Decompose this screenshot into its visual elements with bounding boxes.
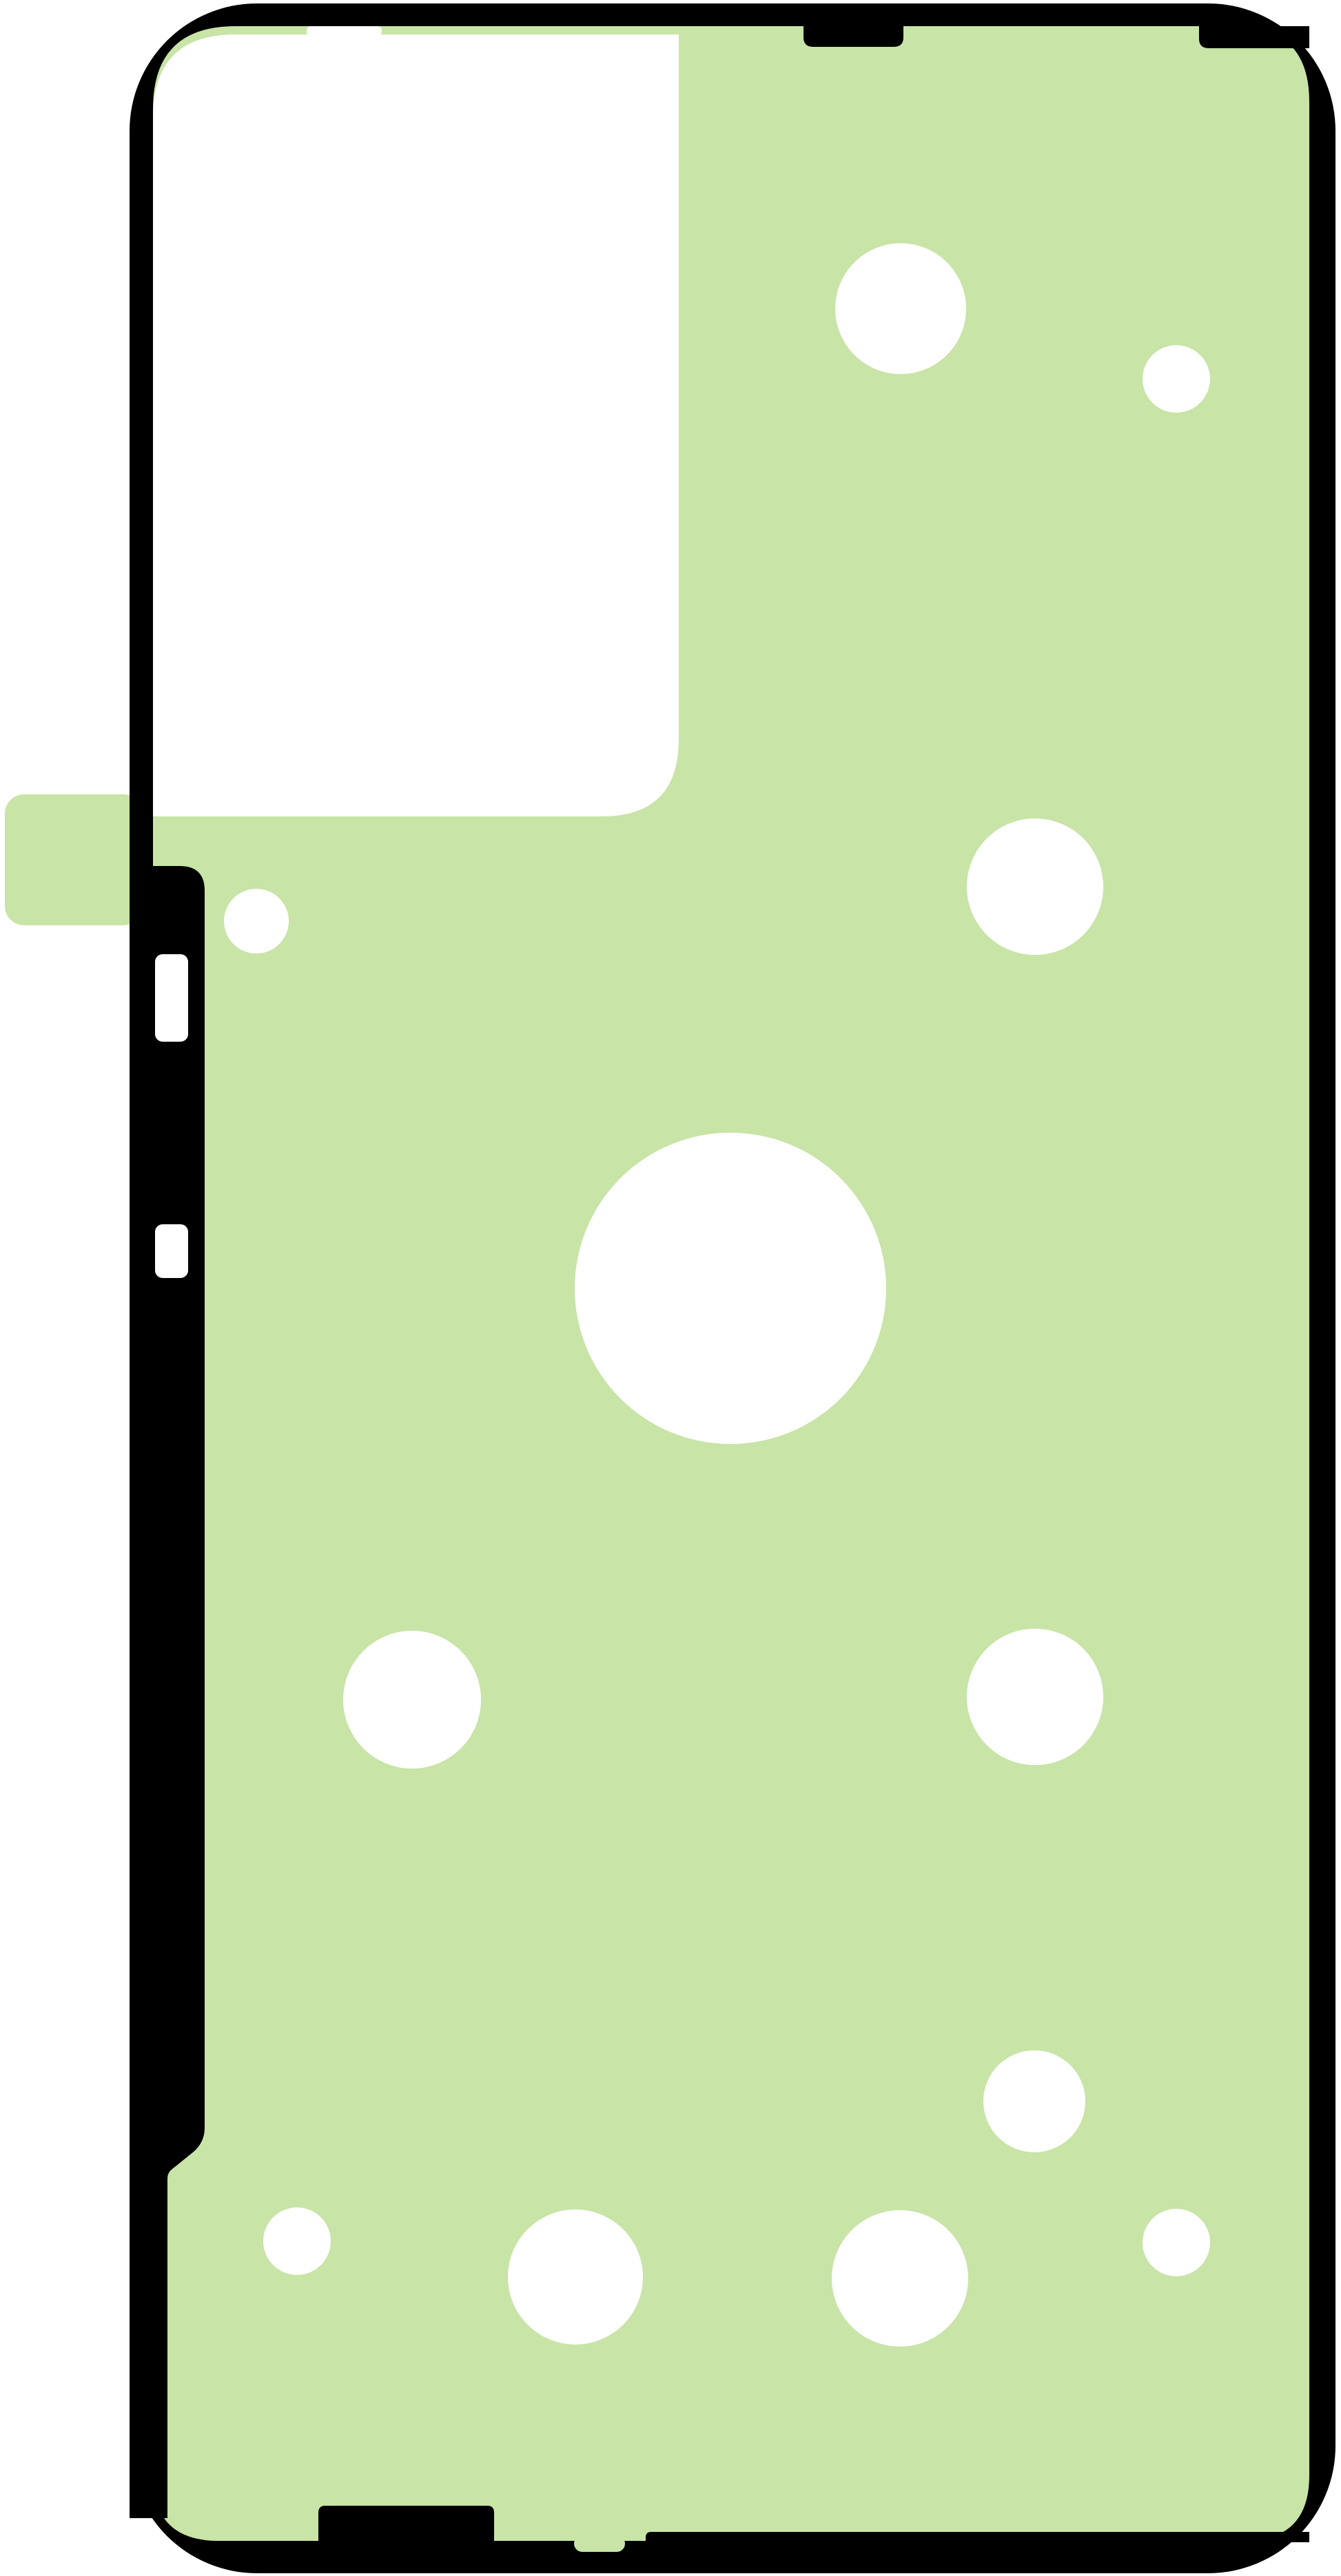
adhesive-sticker-figure <box>0 0 1341 2576</box>
circle-cutout <box>983 2050 1085 2152</box>
circle-cutout <box>832 2210 968 2347</box>
circle-cutout <box>343 1631 481 1769</box>
circle-cutout <box>508 2209 643 2345</box>
bottom-center-block <box>318 2506 494 2549</box>
bottom-edge-dip <box>574 2535 625 2552</box>
top-right-edge-step <box>1199 26 1309 48</box>
circle-cutout <box>967 1629 1103 1765</box>
circle-cutout <box>575 1133 886 1444</box>
circle-cutout <box>967 818 1103 955</box>
button-slot-cutout <box>155 1224 188 1278</box>
circle-cutout <box>1143 345 1210 413</box>
circle-cutout <box>224 889 289 954</box>
side-pull-tab <box>5 794 143 925</box>
circle-cutout <box>1143 2209 1210 2276</box>
bottom-right-edge-strip <box>646 2532 1309 2542</box>
adhesive-sticker-canvas <box>0 0 1341 2576</box>
button-slot-cutout <box>155 954 188 1042</box>
camera-top-notch <box>307 26 382 36</box>
circle-cutout <box>835 243 966 374</box>
camera-cutout <box>153 34 679 816</box>
circle-cutout <box>263 2207 331 2275</box>
top-edge-notch <box>803 26 903 47</box>
